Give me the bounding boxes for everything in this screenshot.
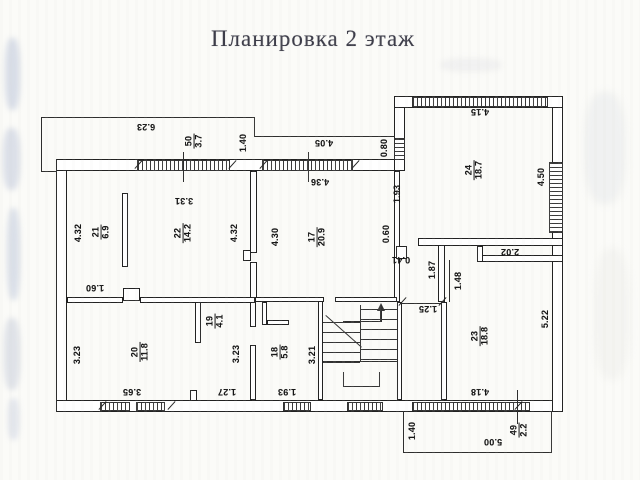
dimension-label: 4.18 [471,387,489,397]
room-label-20: 2011.8 [130,342,151,362]
dimension-label: 4.30 [270,228,280,246]
line [183,152,184,182]
dimension-label: 1.40 [238,134,248,152]
wall [397,302,402,400]
window [549,162,563,233]
room-label-24: 2418.7 [464,160,485,180]
label-numerator: 24 [465,165,474,175]
stairs-up-arrow-icon [377,303,385,311]
stairs-railing [343,372,380,387]
dimension-label: 0.60 [381,225,391,243]
wall [441,302,447,400]
label-numerator: 50 [185,136,194,146]
line [403,411,404,453]
dimension-label: 1.87 [427,261,437,279]
dimension-label: 4.15 [471,107,489,117]
dimension-label: 3.21 [307,346,317,364]
window [136,402,165,411]
wall [482,255,563,262]
dimension-label: 5.00 [484,437,502,447]
dimension-label: 1.60 [86,283,104,293]
dimension-label: 3.23 [72,346,82,364]
label-numerator: 17 [308,232,317,242]
dimension-label: 0.80 [379,139,389,157]
wall [243,250,251,261]
room-label-17: 1720.9 [307,227,328,247]
line [41,171,57,172]
dimension-label: 1.27 [218,387,236,397]
label-numerator: 49 [510,425,519,435]
line [255,136,395,137]
dimension-label: 3.23 [231,345,241,363]
label-denominator: 2.2 [519,422,529,437]
window [412,97,548,107]
wall [250,345,256,400]
window [347,402,383,411]
dimension-label: 1.40 [407,422,417,440]
wall [190,390,197,401]
label-denominator: 18.8 [480,326,490,346]
wall [67,297,123,303]
line [41,117,42,172]
wall [122,193,128,267]
dimension-label: 4.05 [315,138,333,148]
dimension-label: 3.31 [175,196,193,206]
wall [195,302,201,343]
wall [250,171,257,253]
room-label-21: 216.9 [91,224,112,239]
stairs-right-flight [361,309,397,362]
label-denominator: 4.1 [215,313,225,328]
line [449,260,450,302]
window-code-50: 503.7 [184,133,205,148]
label-denominator: 5.8 [280,344,290,359]
dimension-label: 3.65 [123,387,141,397]
wall [250,262,257,302]
label-denominator: 18.7 [474,160,484,180]
wall [250,302,256,327]
dimension-label: 5.22 [540,310,550,328]
line [403,452,552,453]
window [412,402,530,411]
window [394,138,405,160]
label-numerator: 23 [471,331,480,341]
floor-plan: 216.92214.21720.92418.7194.12011.8185.82… [0,0,640,480]
line [41,117,255,118]
line [123,300,140,301]
dimension-label: 6.23 [137,122,155,132]
window [283,402,311,411]
label-numerator: 22 [174,228,183,238]
line [254,117,255,137]
dimension-label: 4.32 [229,224,239,242]
wall [56,159,67,412]
room-label-19: 194.1 [205,313,226,328]
line [308,152,309,182]
dimension-label: 1.25 [419,304,437,314]
wall [335,297,397,302]
dimension-label: 4.32 [73,224,83,242]
label-numerator: 18 [271,347,280,357]
label-denominator: 11.8 [140,342,150,362]
label-denominator: 20.9 [317,227,327,247]
line [551,411,552,453]
wall [255,297,324,302]
wall [267,320,289,325]
scanned-floor-plan-page: Планировка 2 этаж 216.92214.21720.92418.… [0,0,640,480]
room-label-18: 185.8 [270,344,291,359]
label-numerator: 20 [131,347,140,357]
dimension-label: 2.02 [501,247,519,257]
label-numerator: 21 [92,227,101,237]
wall [552,96,563,412]
label-denominator: 14.2 [183,223,193,243]
label-denominator: 6.9 [101,224,111,239]
dimension-label: 4.36 [311,177,329,187]
room-label-23: 2318.8 [470,326,491,346]
wall [477,246,483,262]
dimension-label: 4.50 [536,168,546,186]
wall [438,245,445,302]
label-numerator: 19 [206,316,215,326]
dimension-label: 1.48 [453,272,463,290]
dimension-label: 1.93 [278,387,296,397]
window-code-49: 492.2 [509,422,530,437]
dimension-label: 0.41 [392,255,410,265]
room-label-22: 2214.2 [173,223,194,243]
label-denominator: 3.7 [194,133,204,148]
dimension-label: 1.93 [392,185,402,203]
